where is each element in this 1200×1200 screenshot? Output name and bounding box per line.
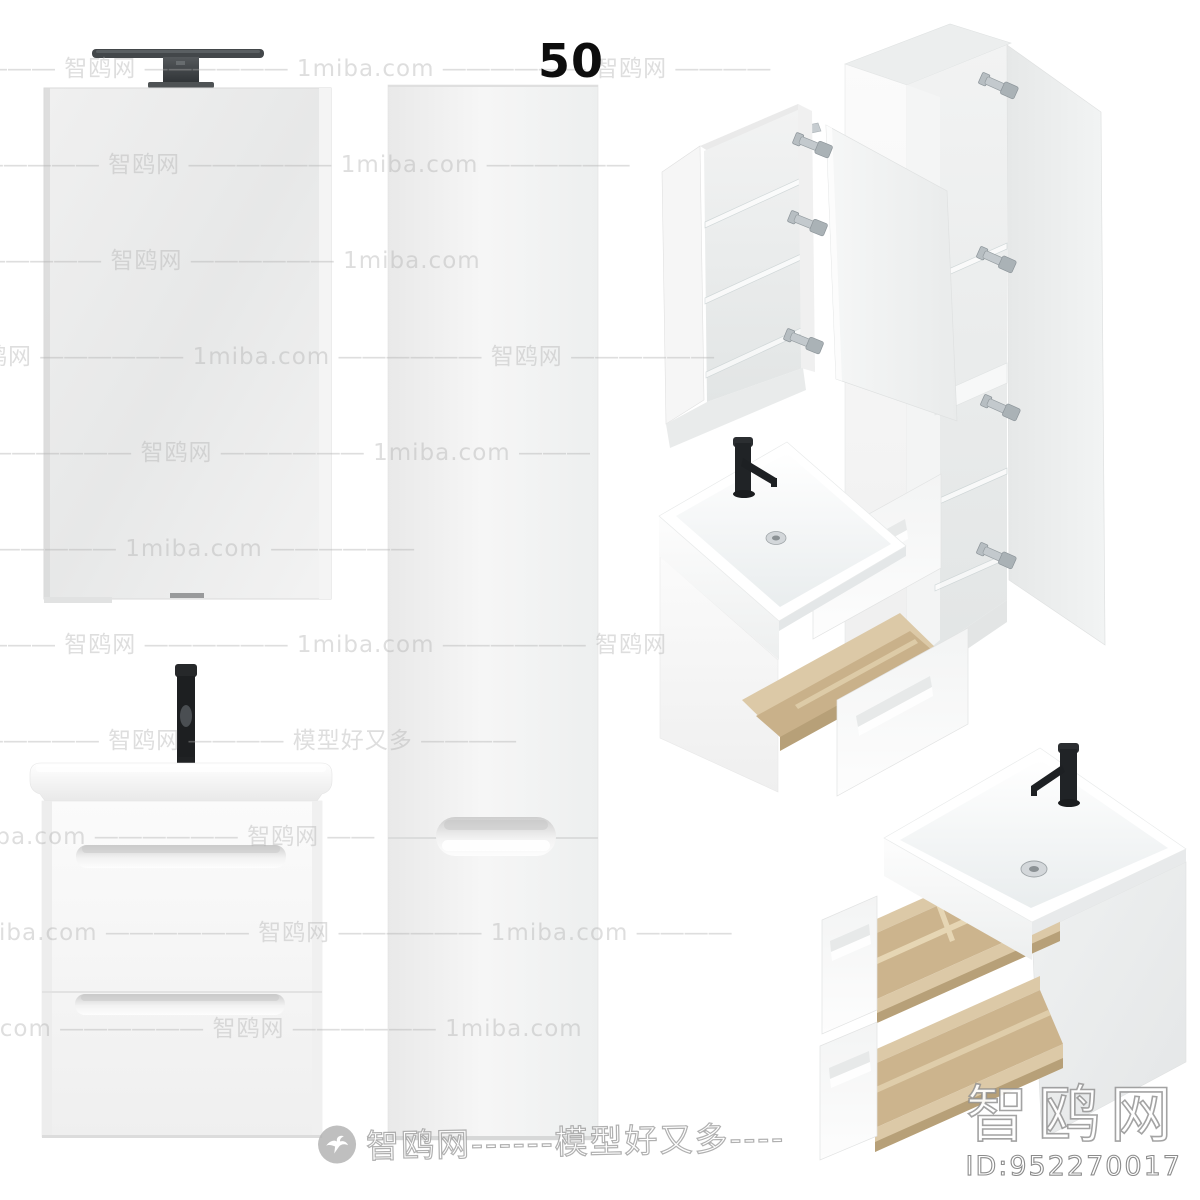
watermark-corner: 智鸥网 ID:952270017 xyxy=(966,1082,1182,1182)
seagull-icon xyxy=(318,1125,357,1164)
tall-cabinet-door-open xyxy=(1007,45,1105,645)
drawer-handle-groove-top xyxy=(76,845,286,868)
mirror-glass xyxy=(44,88,331,599)
drawer-handle-groove-bottom xyxy=(75,994,285,1015)
furniture-render xyxy=(0,0,1200,1200)
watermark-footer-text: 智鸥网------模型好又多---- xyxy=(366,1111,786,1168)
size-label: 50 xyxy=(536,34,606,88)
product-showcase: ―――― 智鸥网 ―――――― 1miba.com ―――――― 智鸥网 ―――… xyxy=(0,0,1200,1200)
faucet-front xyxy=(175,664,197,764)
drawer-front-panel xyxy=(820,1022,877,1160)
watermark-brand: 智鸥网 xyxy=(966,1082,1182,1147)
drawer-front-panel xyxy=(822,896,877,1034)
mirror-cabinet-side-panel xyxy=(662,146,704,424)
watermark-footer: 智鸥网------模型好又多---- xyxy=(318,1111,786,1169)
mirror-front-view xyxy=(44,49,331,603)
mirror-cabinet-interior xyxy=(704,109,803,402)
tall-cabinet-front-view xyxy=(388,85,598,1140)
vanity-front-view xyxy=(30,664,332,1138)
mirror-light-fixture xyxy=(92,49,264,88)
tall-cabinet-handle-recess xyxy=(436,817,556,856)
model-id: ID:952270017 xyxy=(966,1151,1182,1182)
